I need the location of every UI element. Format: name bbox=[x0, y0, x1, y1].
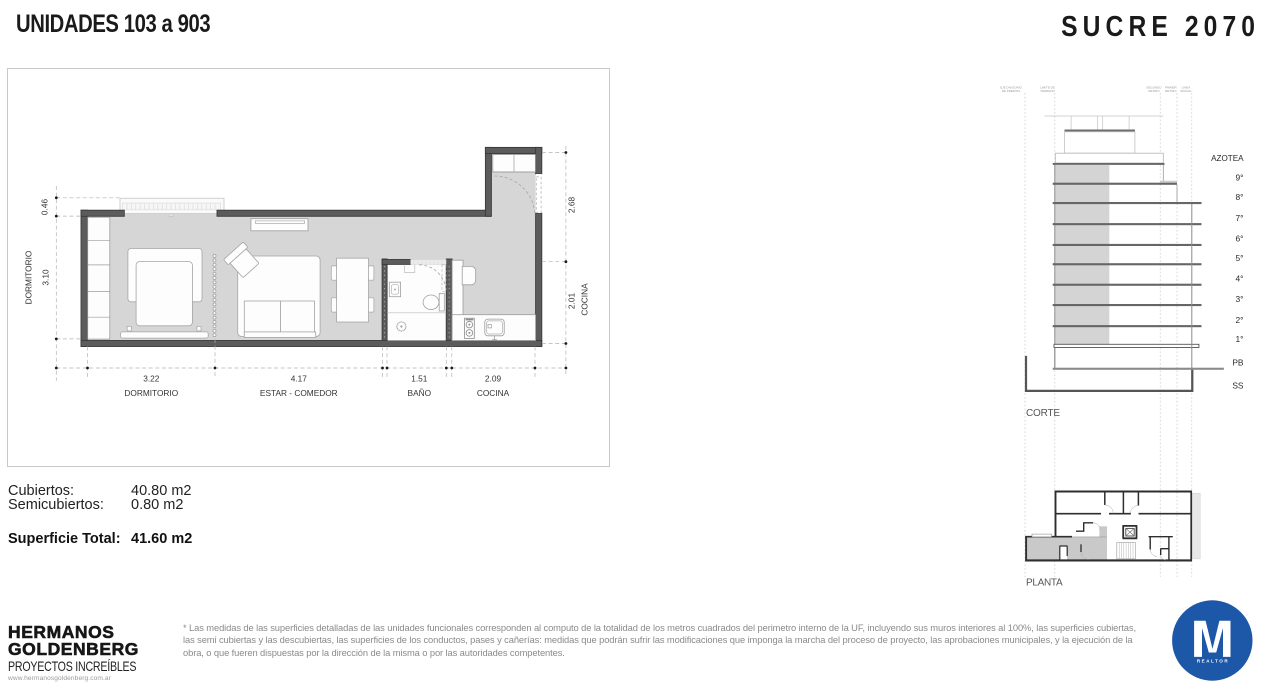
svg-text:2.09: 2.09 bbox=[485, 374, 502, 384]
svg-text:PB: PB bbox=[1232, 358, 1244, 368]
svg-text:3.22: 3.22 bbox=[143, 374, 160, 384]
svg-text:6°: 6° bbox=[1235, 234, 1243, 244]
svg-text:TERRENO: TERRENO bbox=[1040, 89, 1055, 93]
svg-text:DORMITORIO: DORMITORIO bbox=[24, 250, 34, 304]
svg-text:AZOTEA: AZOTEA bbox=[1211, 154, 1244, 163]
svg-text:1°: 1° bbox=[1235, 334, 1243, 344]
svg-text:8°: 8° bbox=[1235, 192, 1243, 202]
svg-text:ESTAR - COMEDOR: ESTAR - COMEDOR bbox=[260, 388, 338, 398]
svg-text:SS: SS bbox=[1232, 381, 1244, 391]
svg-text:4.17: 4.17 bbox=[291, 374, 308, 384]
svg-text:DORMITORIO: DORMITORIO bbox=[124, 388, 178, 398]
svg-text:COCINA: COCINA bbox=[580, 283, 590, 316]
svg-text:RETIRO: RETIRO bbox=[1148, 89, 1160, 93]
svg-text:1.51: 1.51 bbox=[411, 374, 428, 384]
svg-text:2°: 2° bbox=[1235, 315, 1243, 325]
svg-text:2.68: 2.68 bbox=[567, 197, 577, 214]
svg-text:BAÑO: BAÑO bbox=[408, 388, 432, 398]
svg-text:5°: 5° bbox=[1235, 253, 1243, 263]
svg-text:3°: 3° bbox=[1235, 294, 1243, 304]
svg-text:RETIRO: RETIRO bbox=[1165, 89, 1177, 93]
svg-text:0.46: 0.46 bbox=[40, 199, 50, 216]
svg-text:REALTOR: REALTOR bbox=[1197, 659, 1229, 664]
svg-text:CORTE: CORTE bbox=[1026, 408, 1060, 419]
svg-text:COCINA: COCINA bbox=[477, 388, 510, 398]
svg-text:DE PREDIOS: DE PREDIOS bbox=[1002, 89, 1021, 93]
svg-text:2.01: 2.01 bbox=[567, 293, 577, 310]
svg-text:4°: 4° bbox=[1235, 274, 1243, 284]
svg-text:7°: 7° bbox=[1235, 213, 1243, 223]
svg-text:3.10: 3.10 bbox=[41, 269, 51, 286]
svg-text:9°: 9° bbox=[1235, 173, 1243, 183]
svg-text:PLANTA: PLANTA bbox=[1026, 578, 1063, 589]
svg-text:OFICIAL: OFICIAL bbox=[1180, 89, 1192, 93]
